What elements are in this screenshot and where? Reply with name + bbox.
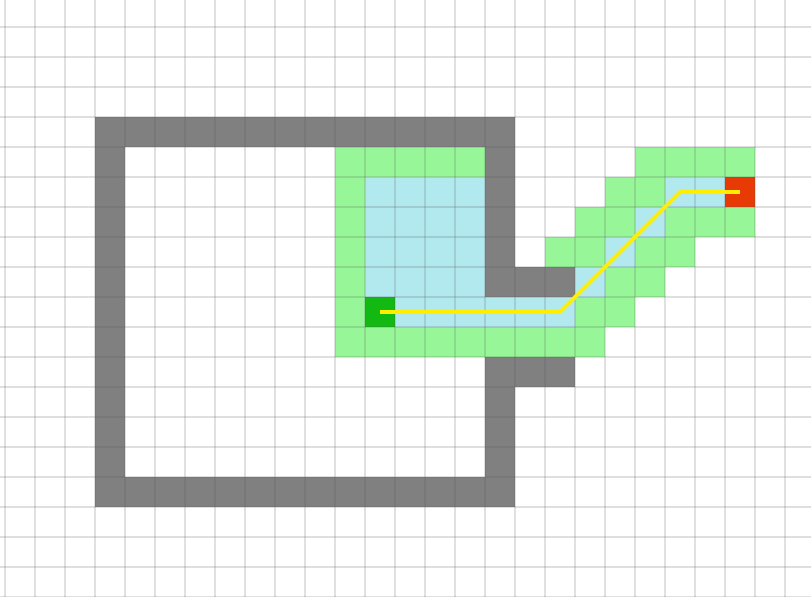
wall-cell	[275, 477, 305, 507]
wall-cell	[305, 117, 335, 147]
wall-cell	[95, 477, 125, 507]
frontier-cell	[335, 207, 365, 237]
wall-cell	[485, 447, 515, 477]
explored-cell	[395, 267, 425, 297]
explored-cell	[455, 267, 485, 297]
frontier-cell	[335, 297, 365, 327]
wall-cell	[485, 417, 515, 447]
wall-cell	[95, 387, 125, 417]
wall-cell	[485, 117, 515, 147]
wall-cell	[515, 267, 545, 297]
frontier-cell	[365, 327, 395, 357]
frontier-cell	[335, 147, 365, 177]
wall-cell	[95, 117, 125, 147]
wall-cell	[95, 417, 125, 447]
frontier-cell	[515, 327, 545, 357]
frontier-cell	[455, 147, 485, 177]
wall-cell	[125, 117, 155, 147]
frontier-cell	[605, 177, 635, 207]
wall-cell	[335, 117, 365, 147]
wall-cell	[95, 207, 125, 237]
wall-cell	[185, 477, 215, 507]
frontier-cell	[395, 327, 425, 357]
frontier-cell	[635, 147, 665, 177]
wall-cell	[485, 237, 515, 267]
explored-cell	[425, 267, 455, 297]
frontier-cell	[605, 267, 635, 297]
frontier-cell	[425, 147, 455, 177]
explored-cell	[425, 207, 455, 237]
explored-cell	[425, 177, 455, 207]
wall-cell	[95, 447, 125, 477]
wall-cell	[425, 477, 455, 507]
wall-cell	[485, 387, 515, 417]
wall-cell	[95, 237, 125, 267]
wall-cell	[485, 147, 515, 177]
wall-cell	[185, 117, 215, 147]
frontier-cell	[425, 327, 455, 357]
frontier-cell	[575, 327, 605, 357]
explored-cell	[425, 237, 455, 267]
wall-cell	[485, 357, 515, 387]
frontier-cell	[725, 207, 755, 237]
frontier-cell	[605, 207, 635, 237]
explored-cell	[365, 177, 395, 207]
frontier-cell	[635, 177, 665, 207]
frontier-cell	[725, 147, 755, 177]
frontier-cell	[635, 267, 665, 297]
explored-cell	[365, 207, 395, 237]
wall-cell	[485, 207, 515, 237]
explored-cell	[365, 267, 395, 297]
wall-cell	[125, 477, 155, 507]
wall-cell	[275, 117, 305, 147]
frontier-cell	[695, 147, 725, 177]
frontier-cell	[545, 237, 575, 267]
frontier-cell	[665, 147, 695, 177]
wall-cell	[215, 477, 245, 507]
wall-cell	[95, 177, 125, 207]
wall-cell	[365, 117, 395, 147]
frontier-cell	[665, 207, 695, 237]
wall-cell	[155, 477, 185, 507]
wall-cell	[485, 177, 515, 207]
explored-cell	[395, 237, 425, 267]
wall-cell	[485, 267, 515, 297]
wall-cell	[95, 297, 125, 327]
pathfinding-visualization	[0, 0, 811, 597]
explored-cell	[365, 237, 395, 267]
wall-cell	[95, 327, 125, 357]
wall-cell	[455, 477, 485, 507]
frontier-cell	[455, 327, 485, 357]
wall-cell	[515, 357, 545, 387]
wall-cell	[95, 147, 125, 177]
wall-cell	[395, 117, 425, 147]
frontier-cell	[365, 147, 395, 177]
frontier-cell	[575, 207, 605, 237]
frontier-cell	[395, 147, 425, 177]
frontier-cell	[335, 237, 365, 267]
explored-cell	[395, 177, 425, 207]
frontier-cell	[335, 177, 365, 207]
frontier-cell	[635, 237, 665, 267]
wall-cell	[485, 477, 515, 507]
wall-cell	[215, 117, 245, 147]
frontier-cell	[485, 327, 515, 357]
explored-cell	[395, 207, 425, 237]
wall-cell	[365, 477, 395, 507]
frontier-cell	[335, 327, 365, 357]
wall-cell	[245, 477, 275, 507]
explored-cell	[455, 207, 485, 237]
grid-canvas[interactable]	[0, 0, 811, 597]
wall-cell	[305, 477, 335, 507]
wall-cell	[545, 357, 575, 387]
wall-cell	[95, 357, 125, 387]
explored-cell	[455, 177, 485, 207]
wall-cell	[95, 267, 125, 297]
wall-cell	[395, 477, 425, 507]
frontier-cell	[335, 267, 365, 297]
wall-cell	[155, 117, 185, 147]
frontier-cell	[695, 207, 725, 237]
wall-cell	[245, 117, 275, 147]
frontier-cell	[665, 237, 695, 267]
wall-cell	[335, 477, 365, 507]
wall-cell	[425, 117, 455, 147]
wall-cell	[455, 117, 485, 147]
frontier-cell	[545, 327, 575, 357]
frontier-cell	[575, 297, 605, 327]
explored-cell	[455, 237, 485, 267]
wall-cell	[545, 267, 575, 297]
frontier-cell	[575, 237, 605, 267]
frontier-cell	[605, 297, 635, 327]
